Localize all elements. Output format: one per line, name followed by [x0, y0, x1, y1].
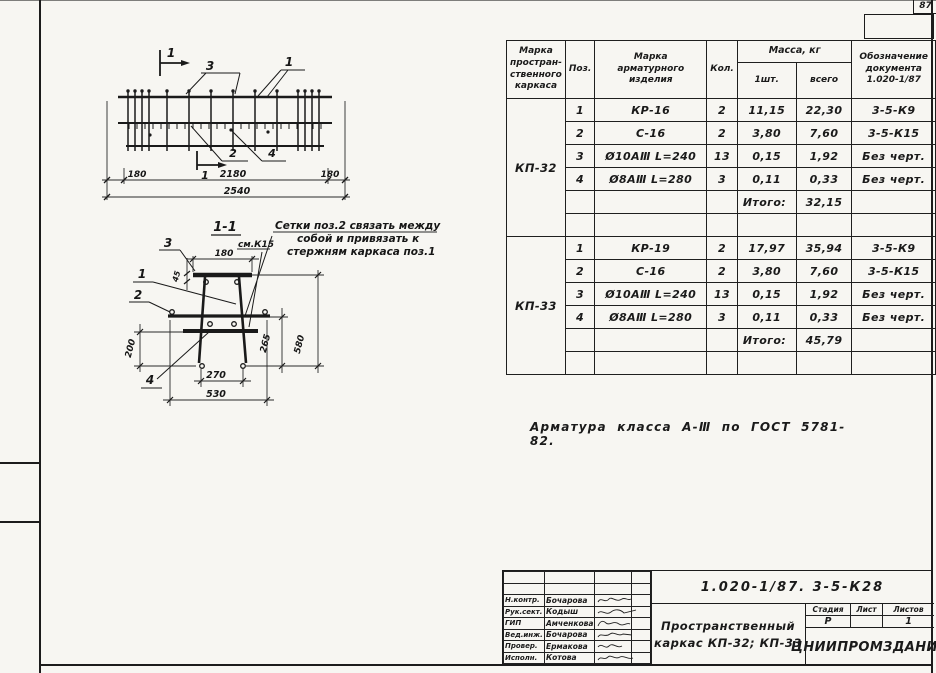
- cell-empty: [545, 583, 595, 595]
- dim-180-left: 180: [128, 170, 147, 180]
- table-row: КП-33 1 КР-19 2 17,97 35,94 3-5-К9: [507, 237, 936, 260]
- tb-signer-row: Исполн. Котова: [504, 652, 652, 664]
- cell-pos: 4: [565, 306, 594, 329]
- col-header-frame-mark: Марка простран- ственного каркаса: [507, 41, 566, 99]
- cell-empty: [796, 352, 852, 375]
- table-row: 2 С-16 2 3,80 7,60 3-5-К15: [507, 122, 936, 145]
- col-header-doc: Обозначение документа 1.020-1/87: [852, 41, 936, 99]
- tb-signer-role: Рук.сект.: [504, 606, 545, 618]
- table-row: 2 С-16 2 3,80 7,60 3-5-К15: [507, 260, 936, 283]
- cell-total: 7,60: [796, 122, 852, 145]
- cell-empty: [632, 572, 652, 584]
- cell-pos: 3: [565, 145, 594, 168]
- cell-doc: Без черт.: [852, 306, 936, 329]
- cell-empty: [796, 214, 852, 237]
- spec-total-label: Итого:: [737, 191, 796, 214]
- cell-doc: 3-5-К15: [852, 260, 936, 283]
- cell-total: 22,30: [796, 99, 852, 122]
- tb-org-name: ЦНИИПРОМЗДАНИЙ: [806, 628, 934, 666]
- tb-signer-role: ГИП: [504, 618, 545, 630]
- cell-qty: 2: [707, 260, 738, 283]
- tb-signer-role: Вед.инж.: [504, 629, 545, 641]
- cell-empty: [852, 214, 936, 237]
- cell-qty: 2: [707, 237, 738, 260]
- cell-empty: [632, 595, 652, 607]
- callout-1: 1: [285, 55, 293, 69]
- signature-scribble: [595, 652, 632, 664]
- tb-signer-role: Исполн.: [504, 652, 545, 664]
- signature-scribble: [595, 641, 632, 653]
- callout-2: 2: [229, 147, 237, 160]
- col-header-qty: Кол.: [707, 41, 738, 99]
- table-row: 3 Ø10АⅢ L=240 13 0,15 1,92 Без черт.: [507, 283, 936, 306]
- tb-sheets-label: Листов: [883, 604, 934, 616]
- cell-doc: Без черт.: [852, 145, 936, 168]
- signature-scribble: [595, 629, 632, 641]
- dim-530: 530: [206, 389, 226, 400]
- spec-total-value: 32,15: [796, 191, 852, 214]
- tb-signer-name: Котова: [545, 652, 595, 664]
- section-callout-4: 4: [145, 373, 154, 387]
- col-header-mass-total: всего: [796, 63, 852, 99]
- cell-empty: [632, 618, 652, 630]
- cell-unit: 3,80: [737, 122, 796, 145]
- cell-total: 0,33: [796, 306, 852, 329]
- cell-empty: [504, 572, 545, 584]
- signature-scribble: [595, 606, 632, 618]
- table-row-separator: [507, 214, 936, 237]
- cell-item: КР-19: [595, 237, 707, 260]
- cell-item: С-16: [595, 260, 707, 283]
- titleblock-signatures: Н.контр. Бочарова Рук.сект. Кодыш ГИП Ам…: [503, 571, 651, 664]
- table-row: КП-32 1 КР-16 2 11,15 22,30 3-5-К9: [507, 99, 936, 122]
- cell-pos: 4: [565, 168, 594, 191]
- cell-pos: 3: [565, 283, 594, 306]
- cell-empty: [595, 572, 632, 584]
- cell-empty: [707, 191, 738, 214]
- tb-signer-row: Вед.инж. Бочарова: [504, 629, 652, 641]
- spec-group-mark: КП-32: [507, 99, 566, 237]
- cell-qty: 13: [707, 283, 738, 306]
- cell-total: 35,94: [796, 237, 852, 260]
- page-number-box: 87: [913, 0, 936, 14]
- cell-empty: [632, 606, 652, 618]
- cell-item: Ø8АⅢ L=280: [595, 168, 707, 191]
- cell-doc: Без черт.: [852, 283, 936, 306]
- cell-total: 7,60: [796, 260, 852, 283]
- tb-signer-name: Бочарова: [545, 595, 595, 607]
- cell-unit: 3,80: [737, 260, 796, 283]
- tb-sheet-value: [851, 616, 883, 628]
- table-row-total: Итого: 32,15: [507, 191, 936, 214]
- tb-signer-name: Бочарова: [545, 629, 595, 641]
- table-row-separator: [507, 352, 936, 375]
- table-row: 4 Ø8АⅢ L=280 3 0,11 0,33 Без черт.: [507, 306, 936, 329]
- cell-unit: 0,15: [737, 145, 796, 168]
- spec-group-mark: КП-33: [507, 237, 566, 375]
- cell-empty: [565, 352, 594, 375]
- cell-empty: [565, 214, 594, 237]
- table-row-total: Итого: 45,79: [507, 329, 936, 352]
- tb-signer-name: Кодыш: [545, 606, 595, 618]
- section-marker-top-label: 1: [167, 46, 175, 60]
- material-note: Арматура класса А-Ⅲ по ГОСТ 5781-82.: [530, 420, 870, 448]
- dim-2540: 2540: [224, 186, 251, 197]
- cell-qty: 13: [707, 145, 738, 168]
- spec-total-value: 45,79: [796, 329, 852, 352]
- signature-scribble: [595, 595, 632, 607]
- dim-200: 200: [124, 338, 139, 359]
- section-note-line1: Сетки поз.2 связать между: [275, 220, 441, 232]
- cell-total: 1,92: [796, 145, 852, 168]
- dim-265: 265: [259, 333, 274, 354]
- tb-signer-role: Провер.: [504, 641, 545, 653]
- cell-empty: [595, 214, 707, 237]
- cell-item: Ø10АⅢ L=240: [595, 145, 707, 168]
- tb-stage-label: Стадия: [806, 604, 851, 616]
- cell-empty: [565, 191, 594, 214]
- section-note-line2: собой и привязать к: [297, 233, 420, 245]
- cell-empty: [707, 352, 738, 375]
- technical-drawing: 1 1 3 1 2 4 180 2180 180 2540 1-1 см.К15…: [0, 0, 500, 560]
- cell-unit: 11,15: [737, 99, 796, 122]
- cell-empty: [545, 572, 595, 584]
- tb-signer-name: Амченкова: [545, 618, 595, 630]
- section-note-line3: стержням каркаса поз.1: [287, 246, 435, 258]
- cell-qty: 3: [707, 168, 738, 191]
- signature-scribble: [595, 618, 632, 630]
- page-number: 87: [919, 1, 932, 11]
- cell-empty: [632, 629, 652, 641]
- tb-stage-value: Р: [806, 616, 851, 628]
- tb-signer-row: ГИП Амченкова: [504, 618, 652, 630]
- cell-empty: [595, 329, 707, 352]
- cell-pos: 2: [565, 260, 594, 283]
- callout-3: 3: [206, 59, 214, 73]
- stamp-box: [864, 14, 934, 39]
- callout-4: 4: [267, 147, 276, 160]
- cell-empty: [852, 352, 936, 375]
- cell-doc: 3-5-К15: [852, 122, 936, 145]
- section-callout-2: 2: [134, 288, 142, 302]
- cell-empty: [595, 191, 707, 214]
- cell-empty: [595, 583, 632, 595]
- cell-unit: 0,11: [737, 168, 796, 191]
- tb-signer-role: Н.контр.: [504, 595, 545, 607]
- tb-sheets-value: 1: [883, 616, 934, 628]
- tb-signer-name: Ермакова: [545, 641, 595, 653]
- cell-doc: 3-5-К9: [852, 237, 936, 260]
- specification-table: Марка простран- ственного каркаса Поз. М…: [506, 40, 936, 375]
- cell-empty: [632, 583, 652, 595]
- cell-empty: [737, 214, 796, 237]
- col-header-item-mark: Марка арматурного изделия: [595, 41, 707, 99]
- cell-empty: [595, 352, 707, 375]
- tb-signer-row: Н.контр. Бочарова: [504, 595, 652, 607]
- table-row: 4 Ø8АⅢ L=280 3 0,11 0,33 Без черт.: [507, 168, 936, 191]
- section-view: 1-1 см.К15 Сетки поз.2 связать между соб…: [124, 220, 442, 406]
- tb-sheet-label: Лист: [851, 604, 883, 616]
- cell-empty: [632, 652, 652, 664]
- drawing-sheet: { "page_number": "87", "material_note": …: [0, 0, 936, 673]
- titleblock: Н.контр. Бочарова Рук.сект. Кодыш ГИП Ам…: [502, 570, 933, 665]
- cell-doc: 3-5-К9: [852, 99, 936, 122]
- cell-qty: 2: [707, 99, 738, 122]
- section-callout-3: 3: [164, 236, 172, 250]
- cell-total: 1,92: [796, 283, 852, 306]
- tb-stage-grid: Стадия Лист Листов Р 1: [806, 604, 934, 628]
- section-title: 1-1: [213, 220, 237, 235]
- cell-qty: 3: [707, 306, 738, 329]
- tb-project-title: Пространственный каркас КП-32; КП-33: [651, 604, 806, 666]
- dim-580: 580: [293, 334, 308, 355]
- cell-unit: 0,15: [737, 283, 796, 306]
- cell-item: Ø10АⅢ L=240: [595, 283, 707, 306]
- cell-pos: 2: [565, 122, 594, 145]
- tb-signer-row: Рук.сект. Кодыш: [504, 606, 652, 618]
- elevation-view: 1 1 3 1 2 4 180 2180 180 2540: [102, 46, 350, 200]
- cell-pos: 1: [565, 99, 594, 122]
- dim-45: 45: [171, 269, 183, 283]
- cell-empty: [504, 583, 545, 595]
- cell-empty: [852, 329, 936, 352]
- col-header-mass: Масса, кг: [737, 41, 852, 63]
- spec-total-label: Итого:: [737, 329, 796, 352]
- cell-total: 0,33: [796, 168, 852, 191]
- col-header-mass-unit: 1шт.: [737, 63, 796, 99]
- tb-empty-row: [504, 583, 652, 595]
- tb-doc-number: 1.020-1/87. 3-5-К28: [651, 571, 934, 604]
- cell-pos: 1: [565, 237, 594, 260]
- tb-signer-row: Провер. Ермакова: [504, 641, 652, 653]
- cell-empty: [632, 641, 652, 653]
- tb-empty-row: [504, 572, 652, 584]
- cell-item: Ø8АⅢ L=280: [595, 306, 707, 329]
- cell-unit: 17,97: [737, 237, 796, 260]
- tb-title-line2: каркас КП-32; КП-33: [654, 635, 802, 652]
- tb-title-line1: Пространственный: [661, 618, 795, 635]
- cell-empty: [852, 191, 936, 214]
- cell-unit: 0,11: [737, 306, 796, 329]
- dim-2180: 2180: [220, 169, 247, 180]
- dim-270: 270: [206, 370, 226, 381]
- col-header-pos: Поз.: [565, 41, 594, 99]
- cell-item: С-16: [595, 122, 707, 145]
- dim-top-180: 180: [215, 249, 234, 259]
- table-row: 3 Ø10АⅢ L=240 13 0,15 1,92 Без черт.: [507, 145, 936, 168]
- cell-empty: [737, 352, 796, 375]
- cell-doc: Без черт.: [852, 168, 936, 191]
- cell-empty: [707, 329, 738, 352]
- cell-item: КР-16: [595, 99, 707, 122]
- cell-empty: [565, 329, 594, 352]
- cell-empty: [707, 214, 738, 237]
- section-callout-1: 1: [138, 267, 146, 281]
- cell-qty: 2: [707, 122, 738, 145]
- dim-180-right: 180: [321, 170, 340, 180]
